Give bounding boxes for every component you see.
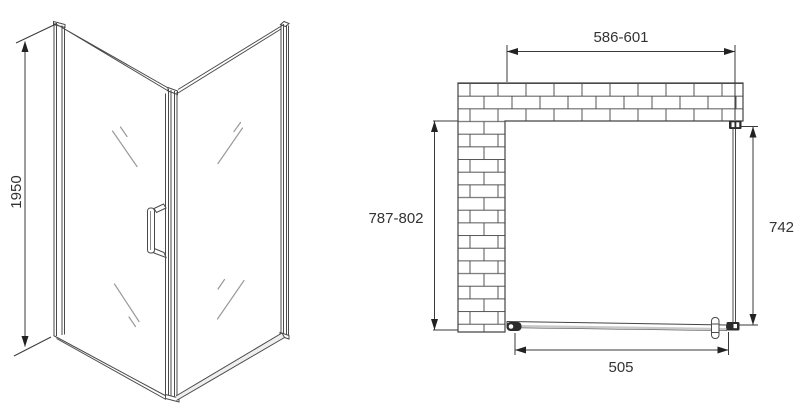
right-wall-profile — [280, 22, 289, 340]
door-panel-plan — [507, 318, 740, 339]
dimension-side-panel-742: 742 — [739, 127, 794, 326]
left-wall-profile — [54, 22, 66, 337]
perspective-view: 1950 — [8, 22, 289, 403]
door-dim-label: 505 — [608, 359, 633, 376]
door-panel-top-edge — [55, 24, 170, 93]
wall-bracket — [729, 121, 742, 130]
dimension-door-505: 505 — [515, 332, 729, 376]
corner-fitting — [727, 322, 740, 331]
door-panel-bottom-rail — [54, 336, 167, 400]
door-handle — [148, 204, 167, 258]
dimension-depth-787-802: 787-802 — [368, 121, 458, 330]
door-knob-plan — [712, 318, 720, 339]
shower-enclosure-technical-drawing: 1950 — [0, 0, 800, 408]
side-panel-bottom-rail — [176, 333, 285, 401]
side-panel-top-edge — [178, 25, 283, 93]
width-dim-label: 586-601 — [593, 29, 648, 46]
side-panel-plan — [729, 121, 742, 323]
dimension-height-1950: 1950 — [8, 24, 56, 356]
brick-wall — [458, 83, 743, 332]
side-panel-dim-label: 742 — [769, 219, 794, 236]
technical-drawing-svg: 1950 — [0, 0, 800, 408]
height-dim-label: 1950 — [8, 175, 25, 208]
plan-view: 586-601 787-802 742 505 — [368, 29, 794, 376]
glass-reflection-marks — [113, 123, 245, 327]
corner-post — [166, 88, 180, 403]
depth-dim-label: 787-802 — [368, 210, 423, 227]
